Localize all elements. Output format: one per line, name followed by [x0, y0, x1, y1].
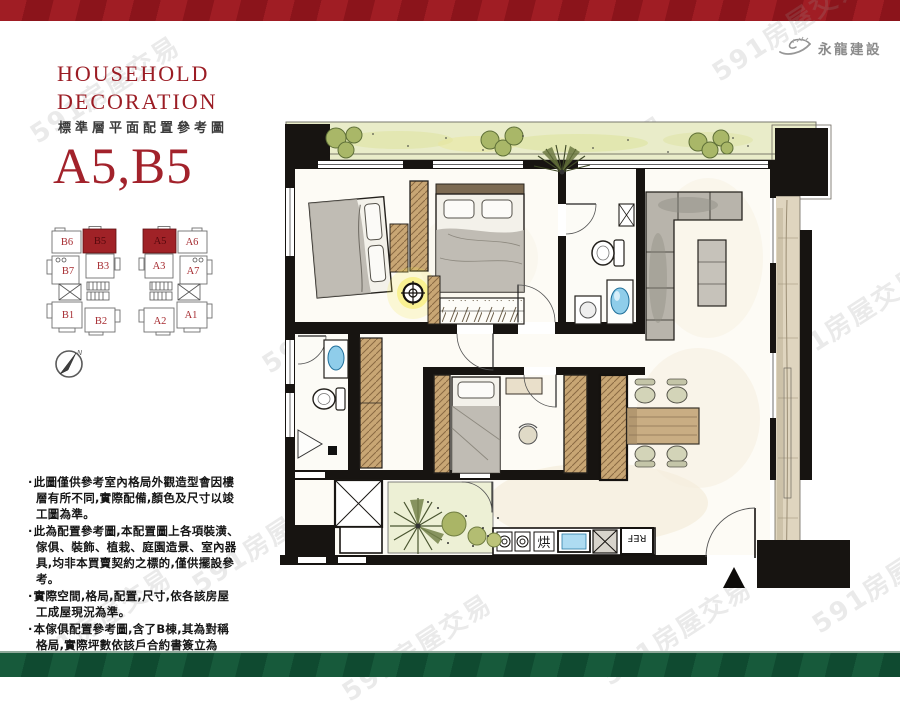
bed-double-2: [436, 194, 524, 292]
kitchen: 烘 REF: [493, 528, 655, 555]
toilet: [313, 388, 345, 410]
side-cabinet: [428, 276, 440, 324]
unit-label: B5: [94, 236, 106, 247]
counter-hatch: [593, 530, 617, 553]
vanity-sink: [607, 280, 633, 324]
unit-label: A2: [154, 316, 167, 327]
tv-bench: [698, 240, 726, 306]
dryer-label: 烘: [537, 536, 550, 551]
unit-label: B1: [62, 310, 74, 321]
unit-label: A1: [185, 310, 198, 321]
unit-label: B7: [62, 266, 74, 277]
floor-plan: 烘 REF: [278, 88, 856, 636]
unit-title: A5,B5: [53, 138, 193, 196]
unit-label: A7: [187, 266, 200, 277]
disclaimer-note: 實際空間,格局,配置,尺寸,依各該房屋工成屋現況為準。: [28, 588, 240, 620]
bed-single: [452, 377, 500, 473]
refrigerator: REF: [621, 528, 653, 554]
page-title-en: HOUSEHOLD DECORATION: [57, 60, 218, 116]
page-subtitle: 標準層平面配置參考圖: [58, 117, 228, 136]
tall-cabinet: [600, 375, 627, 480]
wardrobe: [564, 375, 587, 473]
compass-north-label: N: [77, 349, 83, 357]
unit-label: A6: [186, 237, 199, 248]
shower-fixture: [328, 446, 337, 455]
unit-label: B3: [97, 261, 109, 272]
desk: [506, 378, 542, 394]
bottom-border-stripe: [0, 651, 900, 677]
builder-logo: 永龍建設: [777, 36, 882, 60]
compass-icon: N: [50, 344, 90, 384]
vanity-sink: [324, 340, 348, 378]
fridge-label: REF: [627, 532, 646, 543]
title-line1: HOUSEHOLD: [57, 60, 218, 88]
key-plan-building-a: A5 A6 A3 A7 A2 A1: [134, 224, 214, 338]
page-root: 591房屋交易 591房屋交易 591房屋交易 591房屋交易 591房屋交易 …: [0, 0, 900, 675]
unit-label: A3: [153, 261, 166, 272]
washer: [575, 296, 601, 324]
desk-shelf: [440, 298, 524, 324]
unit-label: A5: [154, 236, 167, 247]
toilet: [592, 240, 624, 266]
headboard: [436, 184, 524, 194]
dining-area: [600, 375, 699, 480]
bed-double-1: [309, 197, 392, 298]
dragon-logo-icon: [777, 36, 813, 60]
unit-label: B6: [61, 237, 73, 248]
wardrobe: [434, 375, 450, 473]
dresser: [390, 224, 408, 272]
bathroom-1: [566, 169, 636, 324]
top-border-stripe: [0, 0, 900, 21]
disclaimer-notes: 此圖僅供參考室內格局外觀造型會因樓層有所不同,實際配備,顏色及尺寸以竣工圖為準。…: [28, 474, 240, 670]
bedroom-2: [428, 184, 524, 324]
entry-marker-triangle: [723, 567, 745, 588]
title-line2: DECORATION: [57, 88, 218, 116]
unit-label: B2: [95, 316, 107, 327]
disclaimer-note: 此圖僅供參考室內格局外觀造型會因樓層有所不同,實際配備,顏色及尺寸以竣工圖為準。: [28, 474, 240, 522]
kitchen-sink: [558, 531, 590, 552]
bathroom-2: [295, 334, 382, 470]
elevator-shaft: [335, 480, 382, 553]
wardrobe: [410, 181, 428, 271]
key-plan-building-b: B6 B5 B7 B3 B1 B2: [45, 224, 125, 338]
disclaimer-note: 此為配置參考圖,本配置圖上各項裝潢、傢俱、裝飾、植栽、庭園造景、室內器具,均非本…: [28, 523, 240, 587]
builder-logo-text: 永龍建設: [818, 38, 882, 58]
